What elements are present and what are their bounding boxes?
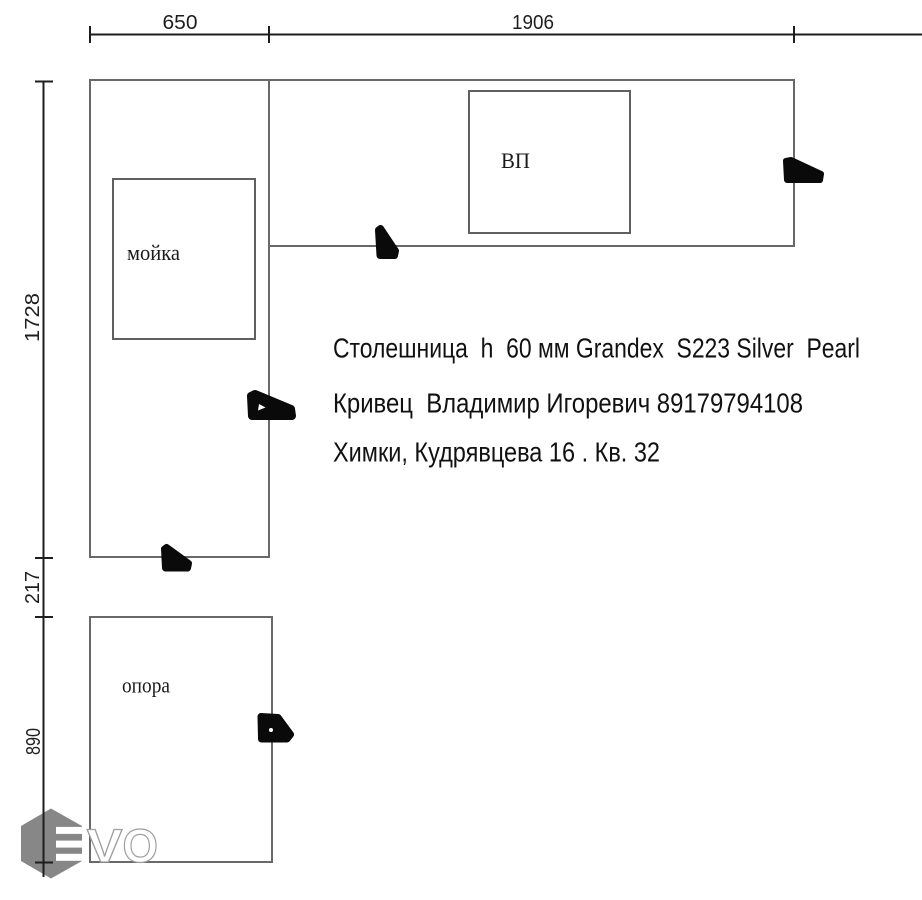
- svg-text:ВП: ВП: [501, 148, 530, 173]
- svg-text:650: 650: [163, 11, 198, 34]
- svg-text:Химки, Кудрявцева 16 . Кв. 32: Химки, Кудрявцева 16 . Кв. 32: [333, 437, 660, 468]
- svg-text:890: 890: [22, 728, 45, 755]
- svg-text:1728: 1728: [21, 293, 44, 342]
- svg-text:1906: 1906: [512, 11, 554, 34]
- svg-text:Кривец Владимир Игоревич 8917: Кривец Владимир Игоревич 89179794108: [333, 388, 803, 419]
- svg-text:O: O: [123, 819, 159, 872]
- svg-text:мойка: мойка: [127, 240, 180, 265]
- svg-text:Столешница h 60 мм Grandex: Столешница h 60 мм Grandex S223 Silver P…: [333, 333, 860, 364]
- svg-text:V: V: [87, 819, 123, 872]
- svg-text:опора: опора: [122, 673, 170, 698]
- svg-text:217: 217: [21, 571, 44, 604]
